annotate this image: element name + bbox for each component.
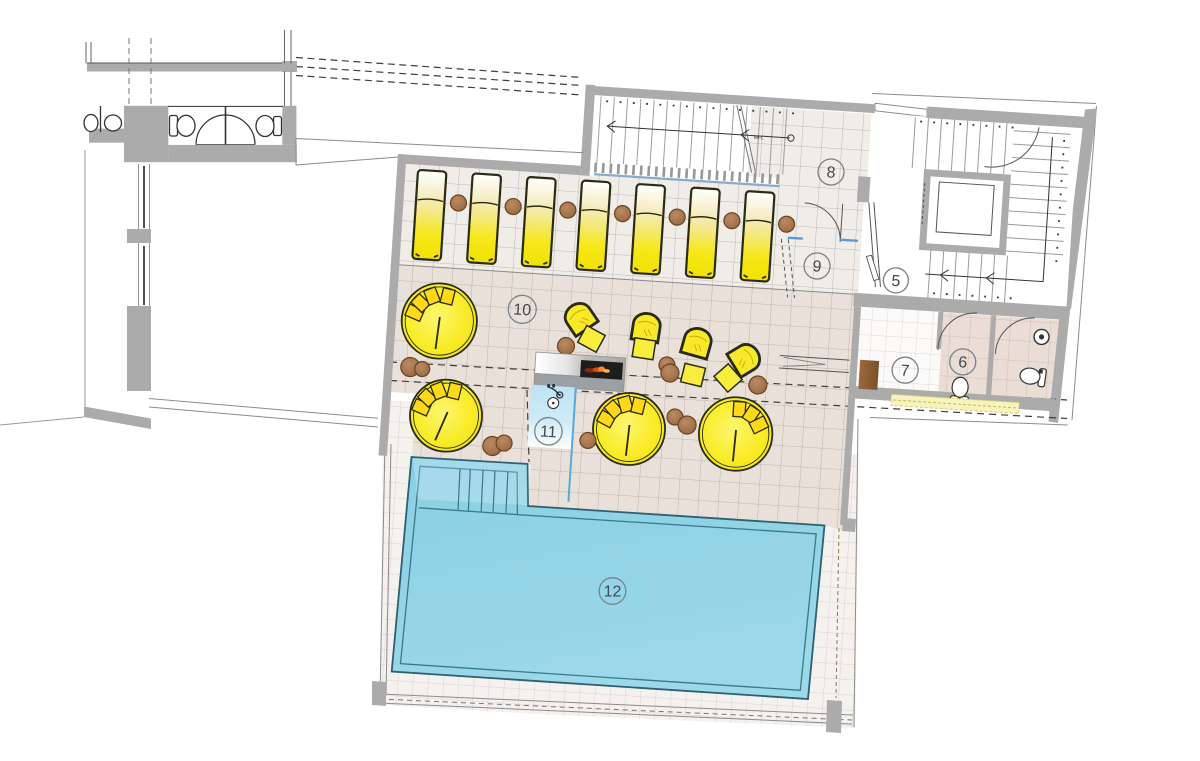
svg-text:6: 6 [958,354,968,372]
svg-text:7: 7 [900,363,910,381]
svg-text:8: 8 [826,164,836,182]
svg-text:12: 12 [604,584,622,601]
svg-text:5: 5 [891,273,901,291]
svg-text:11: 11 [540,423,558,441]
svg-text:MFL: MFL [754,135,765,142]
svg-text:10: 10 [513,301,532,319]
svg-text:9: 9 [812,258,822,276]
